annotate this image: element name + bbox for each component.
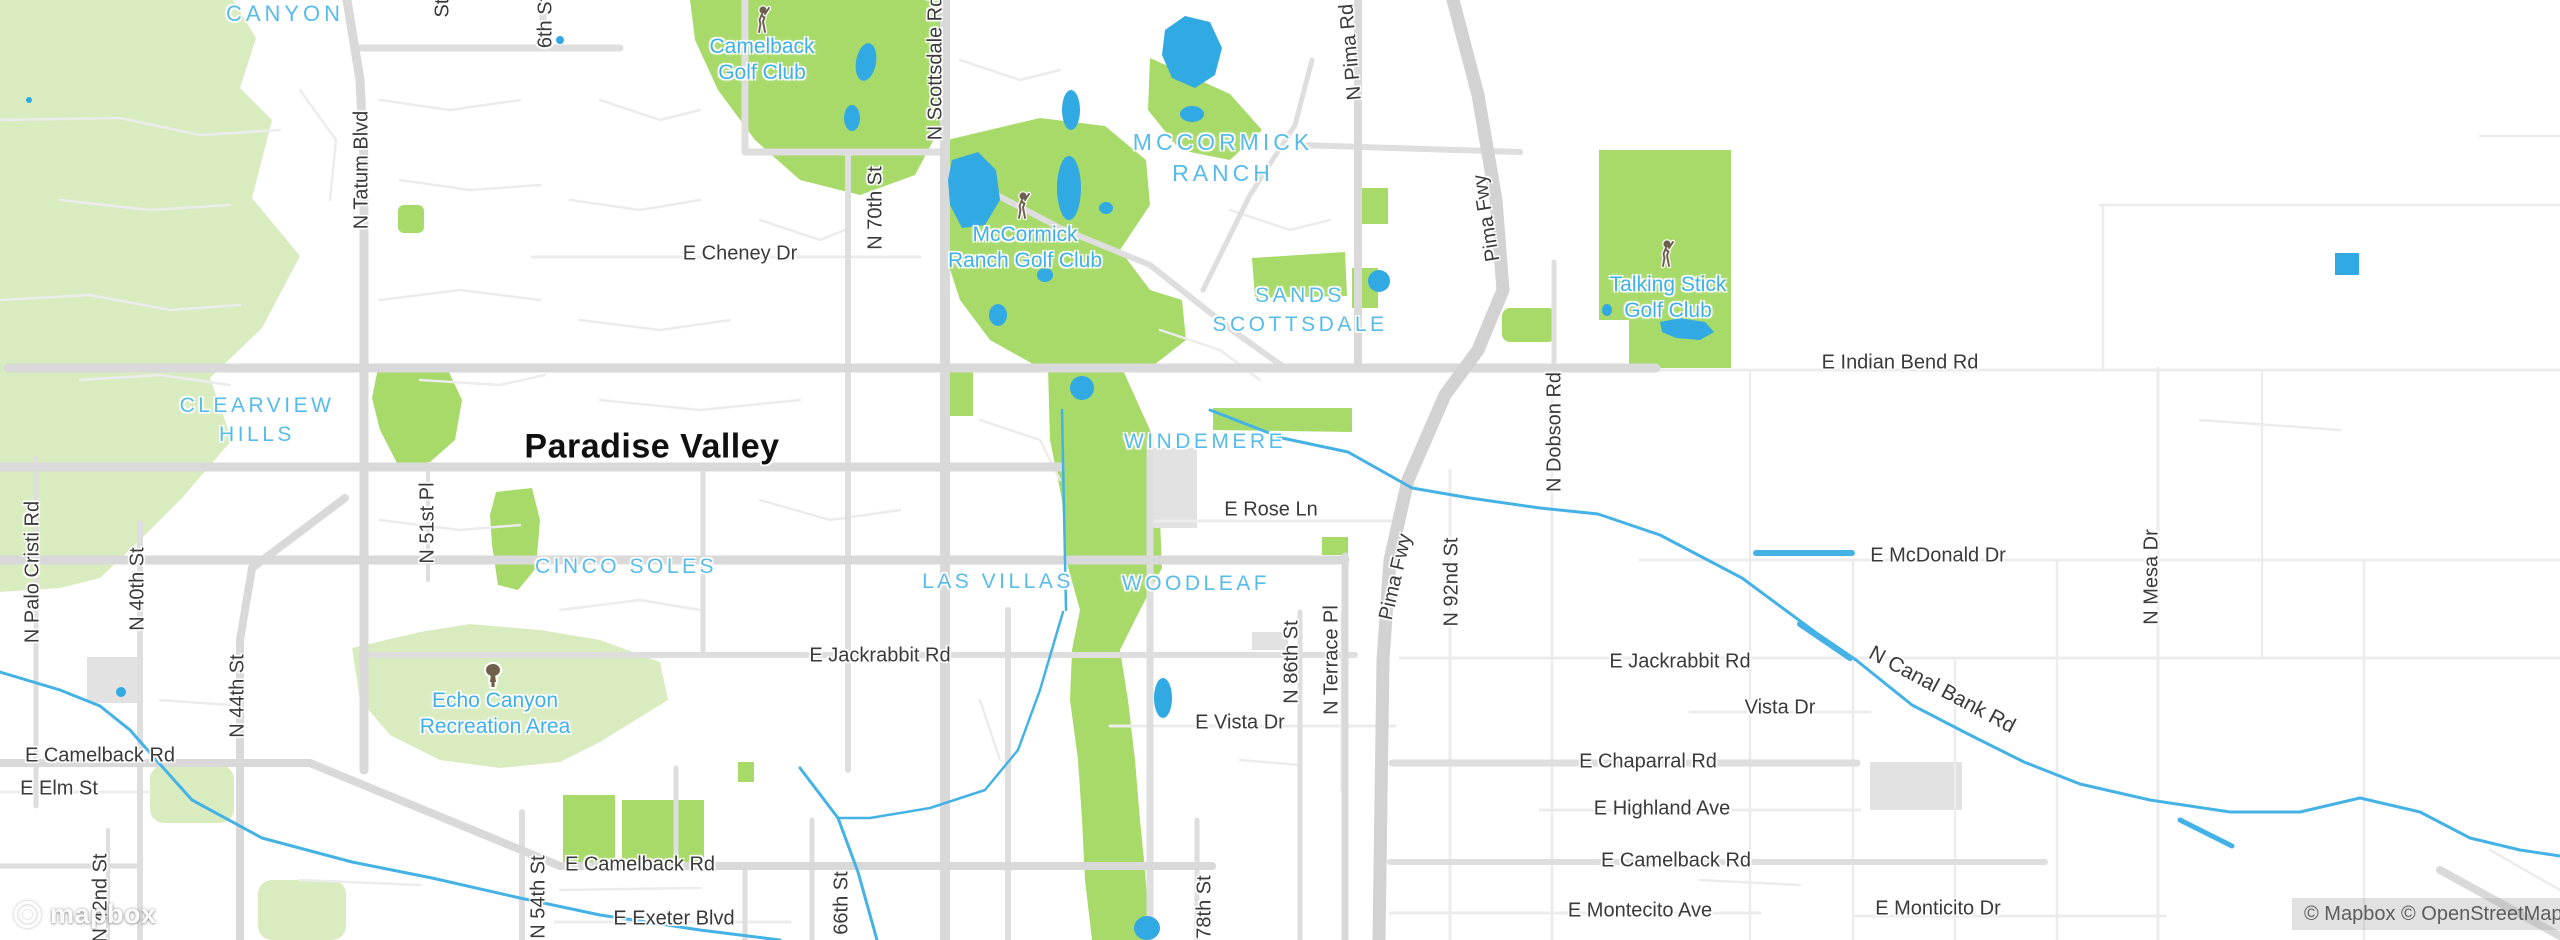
map-attribution[interactable]: © Mapbox © OpenStreetMap xyxy=(2292,898,2560,930)
pond-c xyxy=(989,304,1007,326)
building-windemere xyxy=(1147,448,1197,528)
map-stage: CANYONMCCORMICKRANCHSANDSSCOTTSDALECLEAR… xyxy=(0,0,2560,940)
camelback-lake-2 xyxy=(844,105,860,131)
camelback-bottom-green-2 xyxy=(622,800,704,866)
map-canvas[interactable] xyxy=(0,0,2560,940)
greenbelt-pond-1 xyxy=(1070,376,1094,400)
greenbelt-pond-2 xyxy=(1154,678,1172,718)
rose-ln-green xyxy=(1322,537,1348,555)
building-greenbelt-east xyxy=(1252,632,1288,650)
tiny-dot-2 xyxy=(26,97,32,103)
mapbox-logo[interactable]: mapbox xyxy=(14,899,157,930)
lake-east-scottsdale xyxy=(1057,156,1081,220)
pond-b xyxy=(1037,268,1053,282)
scottsdale-south-green xyxy=(947,372,973,416)
lake-70th xyxy=(1062,90,1080,130)
green-near-pima xyxy=(1358,188,1388,224)
camelback-golf-arm xyxy=(398,205,424,233)
tiny-dot-1 xyxy=(556,36,564,44)
blue-square-east xyxy=(2335,253,2359,275)
attribution-text: © Mapbox © OpenStreetMap xyxy=(2304,903,2560,926)
building-pond xyxy=(116,687,126,697)
building-40th-st xyxy=(87,657,137,703)
building-canal-east xyxy=(1870,762,1962,810)
green-east-of-freeway xyxy=(1502,308,1556,342)
lake-small-north xyxy=(1180,106,1204,122)
pale-park-sw-2 xyxy=(258,880,346,940)
greenbelt-pond-3 xyxy=(1134,916,1160,940)
mapbox-logo-text: mapbox xyxy=(50,899,157,930)
jackrabbit-tiny-green xyxy=(738,762,754,782)
pond-a xyxy=(1099,202,1113,214)
mccormick-green-east xyxy=(1252,252,1347,298)
talking-stick-dot xyxy=(1602,304,1612,316)
sands-lake xyxy=(1368,270,1390,292)
mapbox-logo-icon xyxy=(14,901,41,928)
talking-stick-notch xyxy=(1599,320,1629,368)
camelback-bottom-green-1 xyxy=(563,795,615,866)
